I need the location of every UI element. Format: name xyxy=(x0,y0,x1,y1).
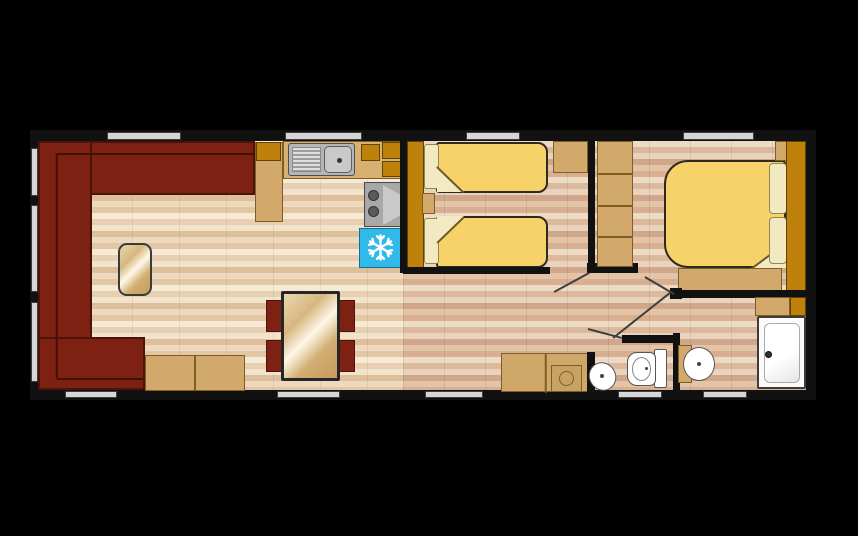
wall-bottom xyxy=(30,390,816,400)
master-cabinet-1 xyxy=(597,141,633,174)
snowflake-icon xyxy=(366,233,395,262)
storage-box-1 xyxy=(145,355,195,391)
master-cabinet-2 xyxy=(597,174,633,206)
window-top-lounge xyxy=(107,132,181,140)
caravan-floor-plan xyxy=(0,0,858,536)
sofa-seam-front xyxy=(57,378,143,380)
shower-door-handle xyxy=(765,351,772,358)
dining-chair-3 xyxy=(339,300,355,332)
storage-box-2 xyxy=(195,355,245,391)
window-bottom-lounge xyxy=(65,391,117,398)
bathroom-cabinet xyxy=(755,297,790,316)
master-bed-bench xyxy=(678,268,782,291)
twin-corner-cabinet xyxy=(553,141,588,173)
window-bottom-bathroom xyxy=(703,391,747,398)
window-left-3 xyxy=(31,302,38,382)
window-left-1 xyxy=(31,148,38,196)
master-bed-duvet xyxy=(664,160,786,268)
cooker-burner-1 xyxy=(368,190,379,201)
window-left-2 xyxy=(31,205,38,292)
window-top-master-bedroom xyxy=(683,132,754,140)
window-bottom-hall xyxy=(425,391,483,398)
cooker-burner-2 xyxy=(368,206,379,217)
wc-basin-drain-dot xyxy=(600,374,604,378)
kitchen-cabinet-sq-3 xyxy=(382,161,402,177)
master-cabinet-3 xyxy=(597,206,633,237)
dining-table xyxy=(281,291,340,381)
wall-twin-right xyxy=(588,141,595,268)
wall-wc-top xyxy=(622,335,675,343)
sofa-seam-top xyxy=(56,153,253,155)
toilet-flush-dot xyxy=(645,367,648,370)
twin-nightstand xyxy=(422,193,435,214)
sink-drain-dot xyxy=(337,158,342,163)
sofa-seam-left xyxy=(56,154,58,379)
wall-right xyxy=(806,130,816,400)
coffee-table xyxy=(118,243,152,296)
utility-unit-seam xyxy=(545,354,547,393)
wall-twin-bottom xyxy=(403,267,550,274)
toilet-bowl-inner xyxy=(632,357,651,381)
kitchen-cabinet-sq-1 xyxy=(361,144,380,161)
dining-chair-2 xyxy=(266,340,282,372)
window-top-twin-bedroom xyxy=(466,132,520,140)
dining-chair-4 xyxy=(339,340,355,372)
wall-twin-left xyxy=(400,141,407,273)
master-cabinet-4 xyxy=(597,237,633,267)
sofa-front-section xyxy=(38,337,145,390)
window-top-kitchen xyxy=(285,132,362,140)
bathroom-cabinet-accent xyxy=(790,297,806,316)
kitchen-cabinet-sq-2 xyxy=(382,142,401,159)
master-pillow-2 xyxy=(769,217,787,264)
utility-appliance-dial xyxy=(559,371,574,386)
window-bottom-dining xyxy=(277,391,340,398)
kitchen-tall-unit-top xyxy=(256,142,281,161)
window-bottom-wc xyxy=(618,391,662,398)
bathroom-basin-drain-dot xyxy=(697,362,701,366)
master-wardrobe xyxy=(786,141,806,292)
master-pillow-1 xyxy=(769,163,787,214)
sink-drainer xyxy=(292,147,321,172)
dining-chair-1 xyxy=(266,300,282,332)
